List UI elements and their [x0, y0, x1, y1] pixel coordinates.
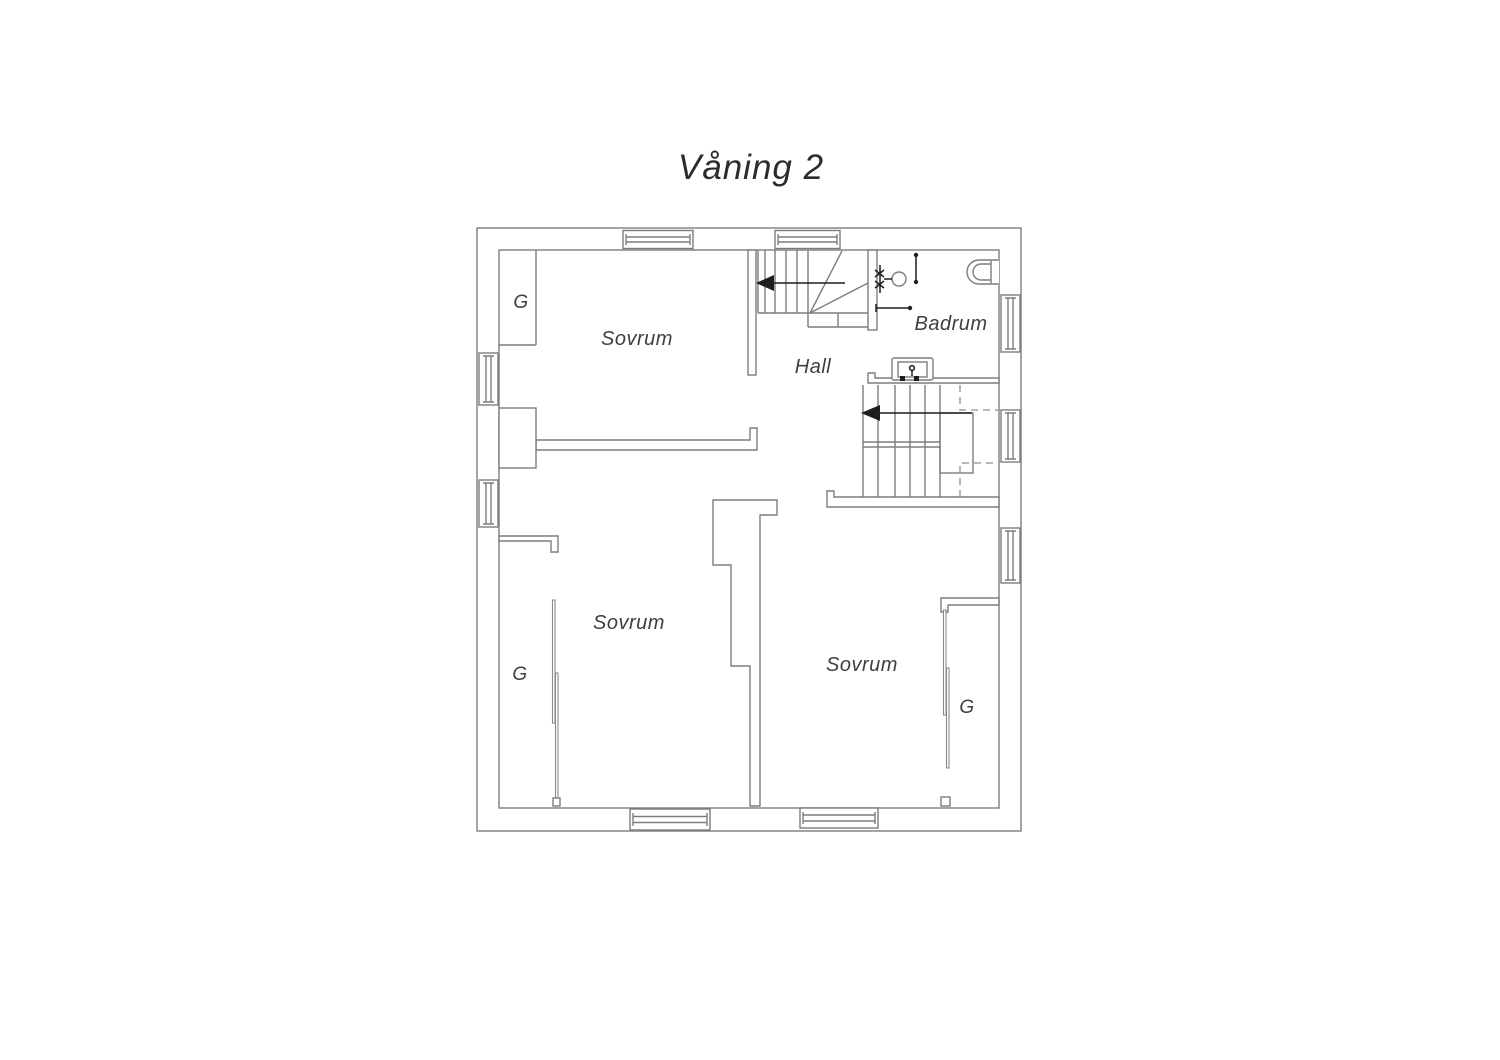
room-label-bedroom-nw: Sovrum: [601, 328, 673, 350]
floor-plan: Sovrum G Hall Badrum Sovrum G Sovrum G: [477, 228, 1021, 831]
window-icon: [1001, 410, 1020, 462]
window-icon: [630, 809, 710, 830]
window-icon: [479, 480, 498, 527]
stair-down-arrow-icon: [861, 405, 880, 421]
page-title: Våning 2: [678, 148, 824, 187]
closet-sliding-door: [947, 668, 950, 768]
closet-sliding-door: [944, 610, 947, 715]
floor-plan-page: Våning 2: [0, 0, 1500, 1060]
floor-plan-drawing: Våning 2: [0, 0, 1500, 1060]
window-icon: [1001, 295, 1020, 352]
room-label-bathroom: Badrum: [914, 313, 987, 335]
window-icon: [775, 231, 840, 249]
closet-sliding-door: [553, 600, 556, 723]
room-label-bedroom-sw: Sovrum: [593, 612, 665, 634]
toilet-icon: [967, 260, 999, 284]
chimney: [499, 408, 536, 468]
closet-label-bedroom-se: G: [959, 697, 974, 718]
window-icon: [1001, 528, 1020, 583]
window-icon: [800, 808, 878, 828]
closet-label-bedroom-nw: G: [513, 292, 528, 313]
window-icon: [479, 353, 498, 405]
sink-icon: [892, 358, 933, 381]
room-label-hall: Hall: [795, 356, 832, 378]
stairs-upper: [756, 250, 877, 330]
window-icon: [623, 231, 693, 249]
room-bedroom-sw: [500, 541, 713, 806]
closet-label-bedroom-sw: G: [512, 664, 527, 685]
room-label-bedroom-se: Sovrum: [826, 654, 898, 676]
closet-sliding-door: [556, 673, 559, 798]
